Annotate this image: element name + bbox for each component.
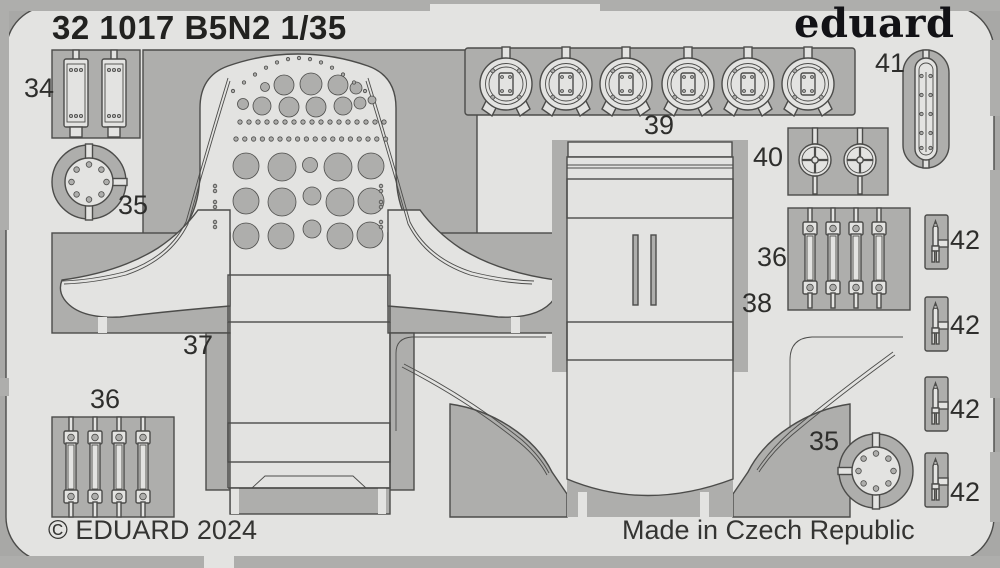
part-41 bbox=[903, 50, 949, 168]
part-label-35-top: 35 bbox=[118, 192, 148, 219]
eduard-logo: eduard bbox=[794, 4, 954, 44]
part-label-41: 41 bbox=[875, 50, 905, 77]
part-40 bbox=[788, 128, 888, 195]
part-39 bbox=[465, 47, 855, 116]
fret-sheet-graphic bbox=[0, 0, 1000, 568]
part-36-left bbox=[52, 417, 174, 517]
copyright-text: © EDUARD 2024 bbox=[48, 517, 257, 544]
part-label-42-1: 42 bbox=[950, 227, 980, 254]
part-label-40: 40 bbox=[753, 144, 783, 171]
part-36-right bbox=[788, 208, 910, 310]
part-label-34: 34 bbox=[24, 75, 54, 102]
part-label-37: 37 bbox=[183, 332, 213, 359]
part-label-42-3: 42 bbox=[950, 396, 980, 423]
part-label-38: 38 bbox=[742, 290, 772, 317]
fret-title: 32 1017 B5N2 1/35 bbox=[52, 11, 347, 44]
photoetch-fret-scan: 32 1017 B5N2 1/35 eduard © EDUARD 2024 M… bbox=[0, 0, 1000, 568]
part-label-42-4: 42 bbox=[950, 479, 980, 506]
part-label-39: 39 bbox=[644, 112, 674, 139]
part-label-42-2: 42 bbox=[950, 312, 980, 339]
part-label-36-right: 36 bbox=[757, 244, 787, 271]
made-in-text: Made in Czech Republic bbox=[622, 517, 915, 544]
part-label-35-bottom: 35 bbox=[809, 428, 839, 455]
part-34 bbox=[52, 50, 140, 138]
part-label-36-left: 36 bbox=[90, 386, 120, 413]
